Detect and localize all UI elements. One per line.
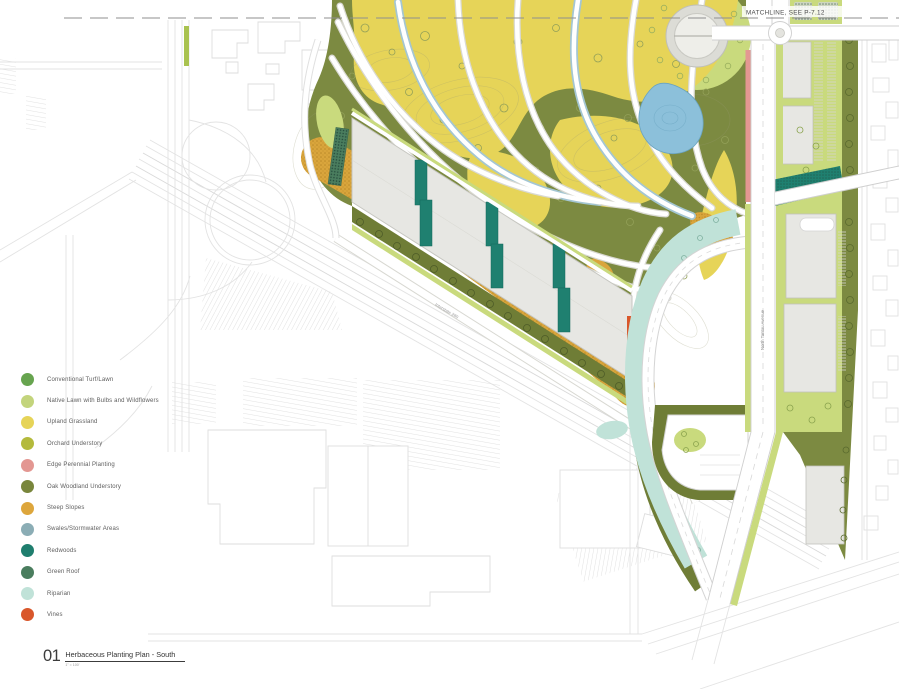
pad-lawn: [674, 428, 706, 452]
legend-swatch: [21, 544, 34, 557]
legend-swatch: [21, 373, 34, 386]
legend-item: Green Roof: [21, 562, 241, 583]
legend-item: Orchard Understory: [21, 433, 241, 454]
title-block: 01 Herbaceous Planting Plan - South 1" =…: [43, 648, 185, 667]
legend-item: Riparian: [21, 583, 241, 604]
overpass-green-strip: [184, 26, 189, 66]
legend-swatch: [21, 502, 34, 515]
legend-item: Upland Grassland: [21, 412, 241, 433]
legend-label: Redwoods: [47, 548, 77, 554]
legend-swatch: [21, 437, 34, 450]
legend-item: Native Lawn with Bulbs and Wildflowers: [21, 390, 241, 411]
tantau-street-label: North Tantau Avenue: [760, 309, 765, 350]
legend-label: Orchard Understory: [47, 441, 102, 447]
legend-label: Conventional Turf/Lawn: [47, 377, 113, 383]
legend-item: Oak Woodland Understory: [21, 476, 241, 497]
legend-label: Native Lawn with Bulbs and Wildflowers: [47, 398, 159, 404]
legend-swatch: [21, 587, 34, 600]
sheet-scale: 1" = 100': [65, 663, 185, 667]
legend-item: Conventional Turf/Lawn: [21, 369, 241, 390]
legend-item: Vines: [21, 604, 241, 625]
legend-label: Oak Woodland Understory: [47, 484, 121, 490]
residential-context: [862, 30, 898, 560]
legend-item: Redwoods: [21, 540, 241, 561]
sheet-title: Herbaceous Planting Plan - South: [65, 650, 185, 662]
legend-swatch: [21, 395, 34, 408]
legend-item: Steep Slopes: [21, 497, 241, 518]
legend-swatch: [21, 608, 34, 621]
planting-plan-sheet: { "drawing": { "matchline_label": "MATCH…: [0, 0, 899, 689]
development-pad: [662, 415, 748, 490]
legend-label: Swales/Stormwater Areas: [47, 526, 119, 532]
matchline-label: MATCHLINE, SEE P-7.12: [746, 10, 825, 17]
legend-item: Swales/Stormwater Areas: [21, 519, 241, 540]
legend-swatch: [21, 459, 34, 472]
legend-label: Riparian: [47, 591, 71, 597]
legend-label: Vines: [47, 612, 63, 618]
legend-label: Upland Grassland: [47, 419, 97, 425]
legend: Conventional Turf/Lawn Native Lawn with …: [21, 369, 241, 626]
east-campus: [779, 28, 858, 560]
legend-label: Steep Slopes: [47, 505, 85, 511]
legend-label: Edge Perennial Planting: [47, 462, 115, 468]
sheet-number: 01: [43, 648, 60, 665]
legend-swatch: [21, 416, 34, 429]
legend-label: Green Roof: [47, 569, 80, 575]
legend-swatch: [21, 523, 34, 536]
legend-item: Edge Perennial Planting: [21, 455, 241, 476]
legend-swatch: [21, 566, 34, 579]
legend-swatch: [21, 480, 34, 493]
